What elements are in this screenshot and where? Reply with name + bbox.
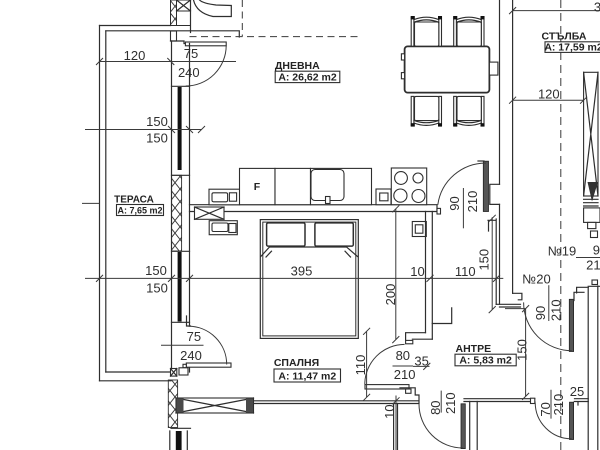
svg-text:АНТРЕ: АНТРЕ [456, 343, 492, 355]
svg-text:10: 10 [410, 264, 424, 279]
svg-text:150: 150 [145, 263, 167, 278]
svg-text:35: 35 [414, 354, 428, 369]
svg-text:210: 210 [465, 191, 480, 213]
svg-text:90: 90 [533, 306, 548, 320]
svg-text:210: 210 [443, 392, 458, 414]
svg-text:75: 75 [187, 329, 201, 344]
svg-text:3: 3 [594, 0, 600, 15]
svg-text:A: 26,62 m2: A: 26,62 m2 [278, 72, 337, 84]
svg-text:A: 17,59 m2: A: 17,59 m2 [544, 42, 600, 54]
svg-text:80: 80 [396, 348, 410, 363]
svg-text:150: 150 [146, 281, 168, 296]
svg-text:№19: №19 [548, 244, 576, 259]
svg-text:150: 150 [146, 131, 168, 146]
svg-text:25: 25 [570, 384, 584, 399]
svg-text:F: F [254, 181, 261, 193]
svg-text:210: 210 [586, 258, 600, 273]
svg-text:80: 80 [428, 400, 443, 414]
svg-text:210: 210 [394, 367, 416, 382]
svg-text:75: 75 [184, 46, 198, 61]
svg-text:90: 90 [593, 243, 600, 258]
svg-text:120: 120 [124, 48, 146, 63]
svg-text:ТЕРАСА: ТЕРАСА [114, 195, 154, 206]
svg-text:395: 395 [291, 264, 313, 279]
svg-text:№20: №20 [522, 271, 550, 286]
svg-text:A: 5,83 m2: A: 5,83 m2 [459, 355, 512, 367]
svg-text:90: 90 [447, 196, 462, 210]
svg-text:110: 110 [455, 264, 476, 279]
svg-text:A: 11,47 m2: A: 11,47 m2 [278, 370, 336, 382]
svg-text:10: 10 [382, 404, 397, 418]
svg-text:150: 150 [146, 114, 168, 129]
svg-text:200: 200 [383, 284, 398, 306]
svg-text:СПАЛНЯ: СПАЛНЯ [274, 357, 319, 369]
svg-text:240: 240 [178, 65, 200, 80]
svg-text:210: 210 [548, 299, 563, 321]
svg-text:120: 120 [538, 87, 560, 102]
svg-text:150: 150 [477, 249, 492, 271]
svg-text:110: 110 [353, 355, 368, 376]
svg-text:210: 210 [551, 394, 566, 416]
svg-text:ДНЕВНА: ДНЕВНА [275, 60, 320, 72]
svg-text:A: 7,65 m2: A: 7,65 m2 [117, 205, 162, 215]
svg-text:СТЪЛБА: СТЪЛБА [542, 30, 587, 42]
svg-text:240: 240 [180, 348, 202, 363]
